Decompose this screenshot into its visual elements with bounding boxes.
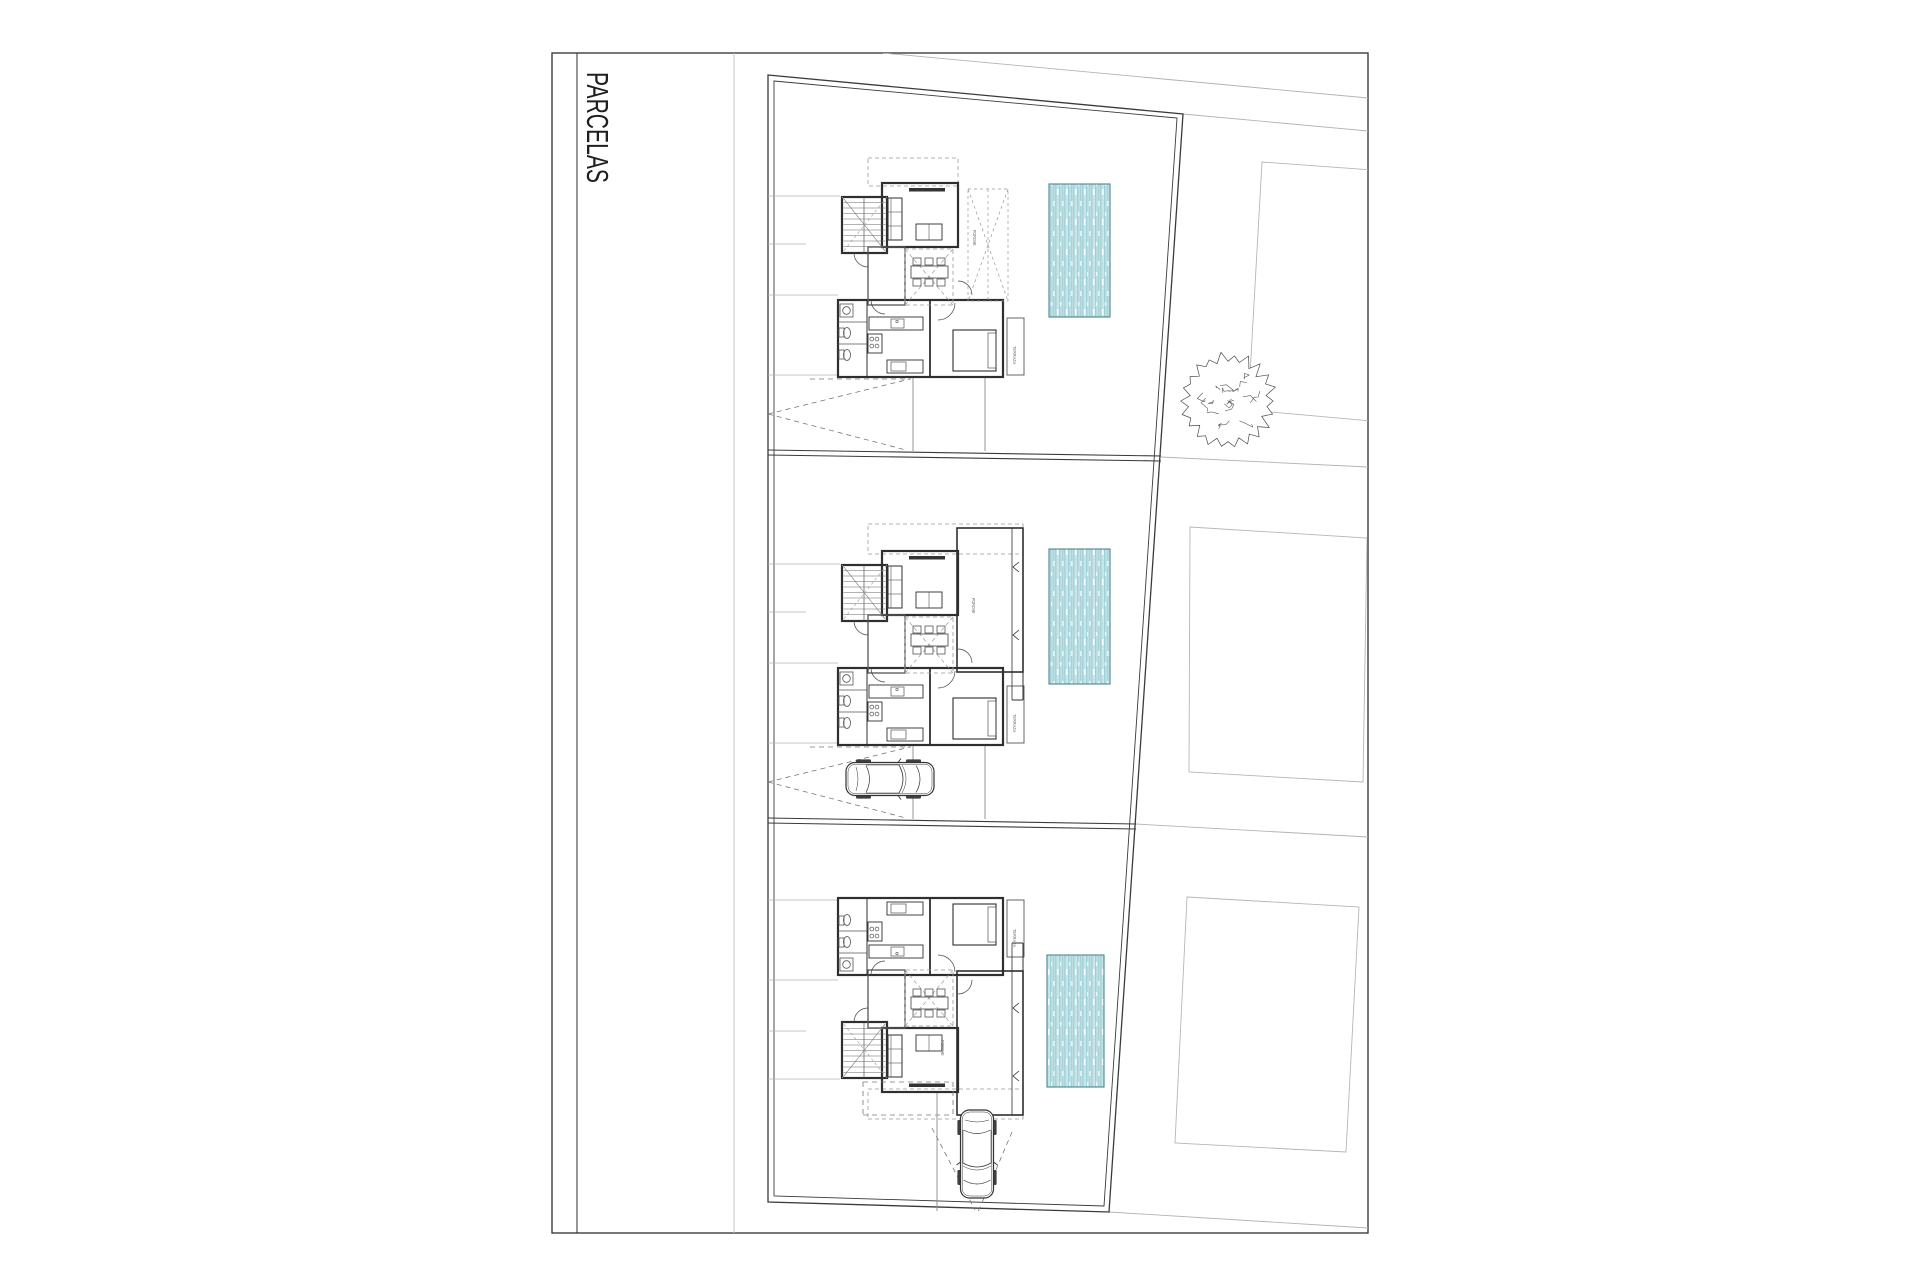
sheet-title: PARCELAS — [580, 72, 615, 183]
road-line-4 — [1161, 457, 1368, 467]
sheet-frame — [552, 53, 1368, 1233]
car-middle — [846, 759, 934, 800]
driveway-1 — [768, 378, 985, 451]
tree-symbol — [1181, 352, 1276, 446]
room-label: PORCHE — [971, 598, 976, 614]
houses — [838, 158, 1024, 1119]
neighbor-footprint-3 — [1175, 897, 1359, 1152]
house-3 — [838, 898, 1024, 1119]
parcel-divider-1 — [768, 450, 1161, 461]
pools — [1047, 184, 1110, 1087]
road-line-5 — [1136, 824, 1368, 837]
house-1 — [838, 158, 1024, 377]
road-line-1 — [883, 53, 1368, 98]
frame-border — [552, 53, 1368, 1233]
parcel-divider-2 — [768, 818, 1136, 829]
car-bottom — [957, 1110, 998, 1198]
road-line-3 — [1109, 1212, 1368, 1228]
drawing-area: PORCHETERRAZAPORCHETERRAZAPORCHETERRAZA — [768, 53, 1372, 1228]
room-label: PORCHE — [940, 1040, 945, 1056]
site-outline-inner — [774, 81, 1177, 1206]
house-labels: PORCHETERRAZAPORCHETERRAZAPORCHETERRAZA — [940, 230, 1017, 1056]
road-line-2 — [1183, 114, 1368, 131]
pool-2 — [1049, 549, 1110, 684]
site-plan-canvas: PARCELAS PORCHETERRAZAPORCHETERRAZAPORCH… — [0, 0, 1920, 1280]
pool-3 — [1047, 955, 1104, 1087]
pool-1 — [1049, 184, 1110, 317]
room-label: TERRAZA — [1012, 929, 1017, 947]
drawing-sheet: PARCELAS PORCHETERRAZAPORCHETERRAZAPORCH… — [0, 0, 1920, 1280]
patio-lines — [768, 196, 840, 1079]
room-label: TERRAZA — [1012, 714, 1017, 732]
room-label: TERRAZA — [1012, 346, 1017, 364]
room-label: PORCHE — [972, 230, 977, 246]
house-2 — [838, 524, 1024, 745]
road-lines — [883, 53, 1368, 1228]
neighbor-footprints — [1175, 162, 1372, 1152]
neighbor-footprint-1 — [1248, 162, 1372, 421]
neighbor-footprint-2 — [1189, 527, 1367, 782]
tree — [1181, 352, 1276, 446]
title-block: PARCELAS — [580, 72, 615, 183]
